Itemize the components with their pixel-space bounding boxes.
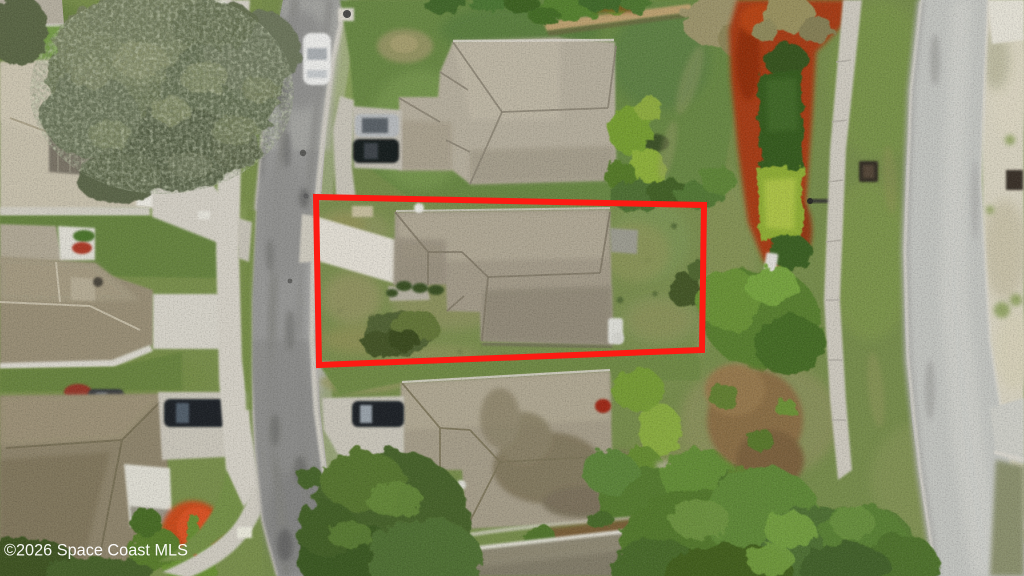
svg-text:©2026 Space Coast MLS: ©2026 Space Coast MLS — [4, 542, 188, 560]
